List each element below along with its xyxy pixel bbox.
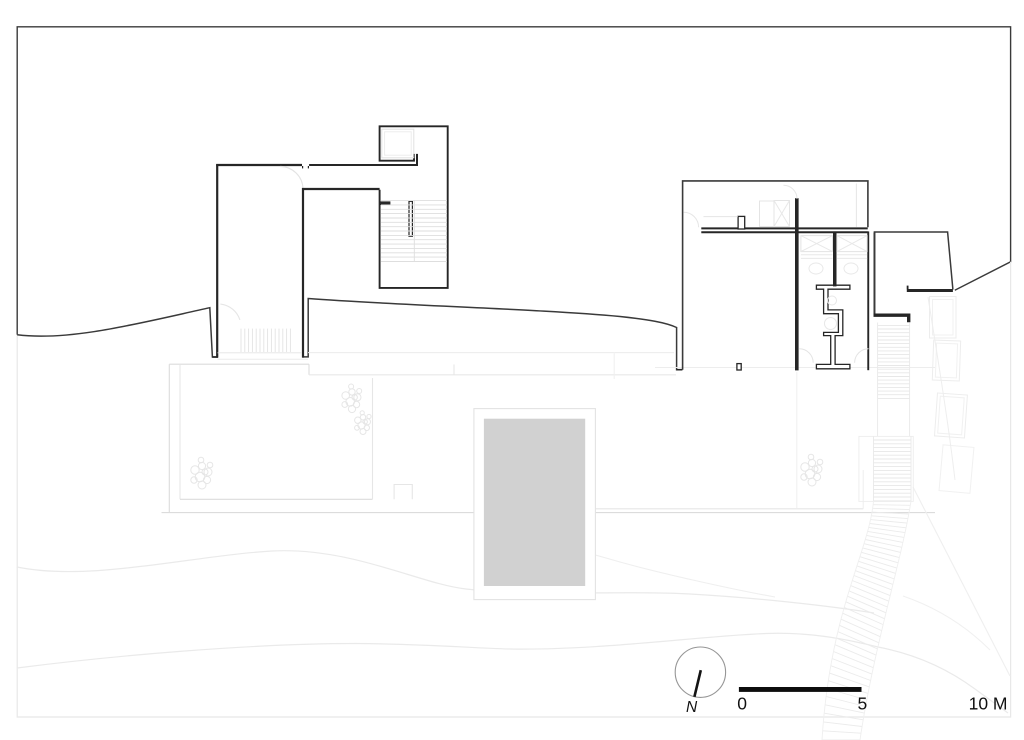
svg-text:5: 5 [858,694,868,714]
svg-text:0: 0 [737,694,747,714]
svg-text:N: N [686,699,698,716]
svg-text:10 M: 10 M [969,694,1008,714]
